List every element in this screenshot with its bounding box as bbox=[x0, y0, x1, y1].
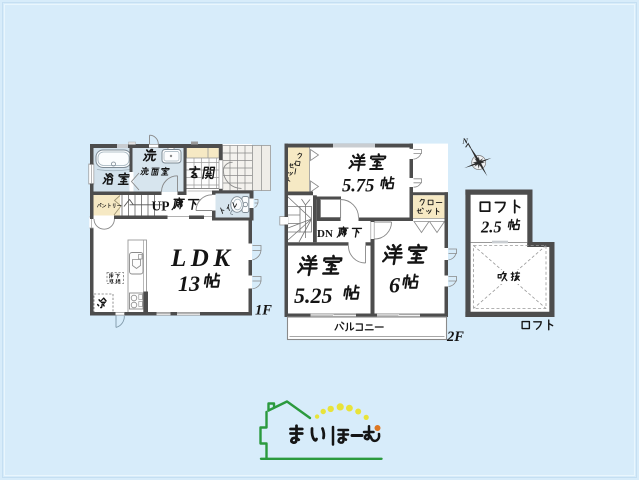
svg-text:DN: DN bbox=[317, 228, 333, 240]
svg-text:UP: UP bbox=[152, 199, 170, 214]
svg-text:5.25: 5.25 bbox=[294, 283, 333, 308]
svg-text:2.5: 2.5 bbox=[480, 218, 502, 237]
svg-text:N: N bbox=[462, 137, 469, 146]
svg-text:2F: 2F bbox=[446, 329, 464, 345]
svg-text:5.75: 5.75 bbox=[342, 177, 374, 197]
svg-text:1F: 1F bbox=[255, 303, 272, 319]
svg-text:6: 6 bbox=[389, 273, 400, 298]
svg-text:LDK: LDK bbox=[170, 245, 235, 272]
svg-text:13: 13 bbox=[178, 271, 200, 296]
